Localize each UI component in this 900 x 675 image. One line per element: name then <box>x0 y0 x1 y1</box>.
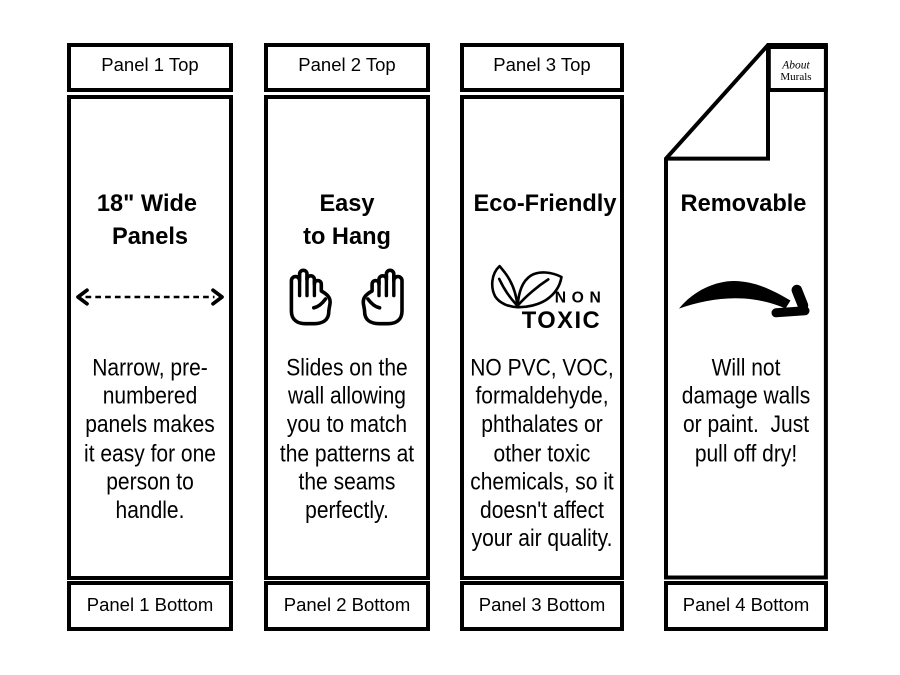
svg-text:NON: NON <box>555 290 607 307</box>
svg-text:TOXIC: TOXIC <box>522 308 601 332</box>
svg-text:Murals: Murals <box>780 71 811 83</box>
svg-text:About: About <box>781 59 810 71</box>
